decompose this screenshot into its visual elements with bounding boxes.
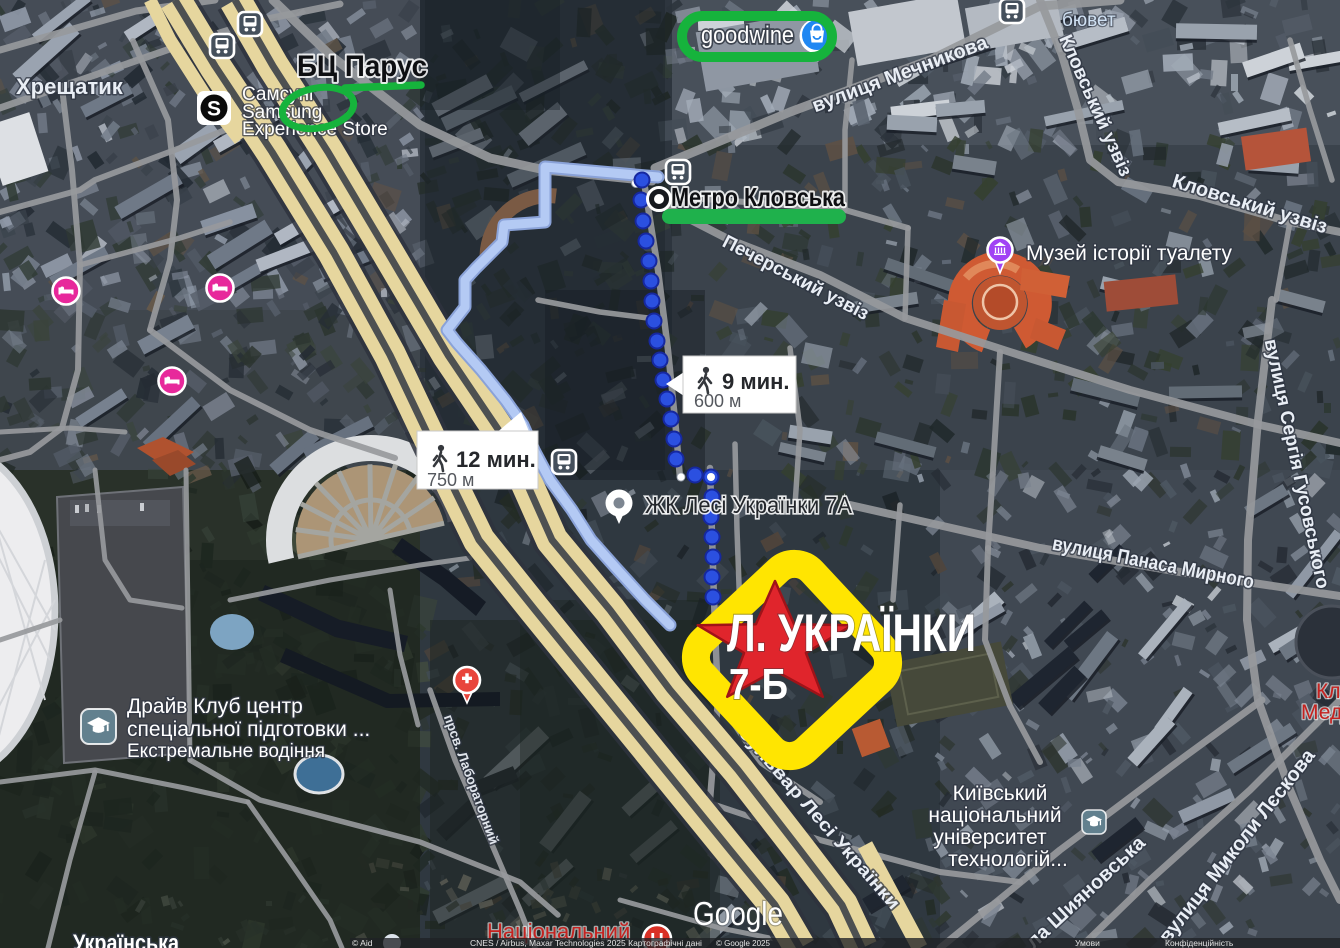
svg-text:Google: Google	[693, 895, 783, 932]
svg-text:Умови: Умови	[1075, 938, 1100, 948]
svg-text:Драйв Клуб центр: Драйв Клуб центр	[127, 695, 303, 718]
svg-text:© Aid: © Aid	[352, 938, 373, 948]
svg-text:600 м: 600 м	[694, 391, 741, 411]
svg-text:Метро Кловська: Метро Кловська	[671, 182, 845, 212]
svg-text:Українська: Українська	[73, 930, 180, 948]
svg-text:Л. УКРАЇНКИ: Л. УКРАЇНКИ	[727, 604, 976, 663]
svg-text:Екстремальне водіння: Екстремальне водіння	[127, 741, 325, 762]
svg-text:національний: національний	[928, 804, 1061, 827]
svg-text:© Google 2025: © Google 2025	[716, 939, 770, 948]
svg-text:Хрещатик: Хрещатик	[16, 74, 124, 99]
svg-text:БЦ Парус: БЦ Парус	[297, 50, 427, 83]
svg-text:спеціальної підготовки ...: спеціальної підготовки ...	[127, 718, 370, 741]
svg-text:бювет: бювет	[1062, 10, 1116, 31]
svg-text:ЖК Лесі Українки 7А: ЖК Лесі Українки 7А	[645, 492, 853, 518]
svg-text:Київський: Київський	[953, 782, 1048, 805]
svg-text:goodwine: goodwine	[701, 22, 794, 49]
svg-text:750 м: 750 м	[427, 470, 474, 490]
svg-text:7-Б: 7-Б	[729, 660, 788, 709]
svg-text:Музей історії туалету: Музей історії туалету	[1026, 242, 1232, 265]
svg-text:CNES / Airbus, Maxar Technolog: CNES / Airbus, Maxar Technologies 2025 К…	[470, 938, 702, 948]
svg-text:S: S	[207, 98, 221, 121]
svg-text:Меді: Меді	[1301, 701, 1340, 724]
svg-text:університет: університет	[933, 826, 1047, 849]
svg-text:Конфіденційність: Конфіденційність	[1165, 938, 1234, 948]
svg-text:технологій...: технологій...	[948, 848, 1068, 871]
svg-text:Кл: Кл	[1316, 680, 1340, 703]
svg-text:12 мин.: 12 мин.	[456, 447, 536, 472]
